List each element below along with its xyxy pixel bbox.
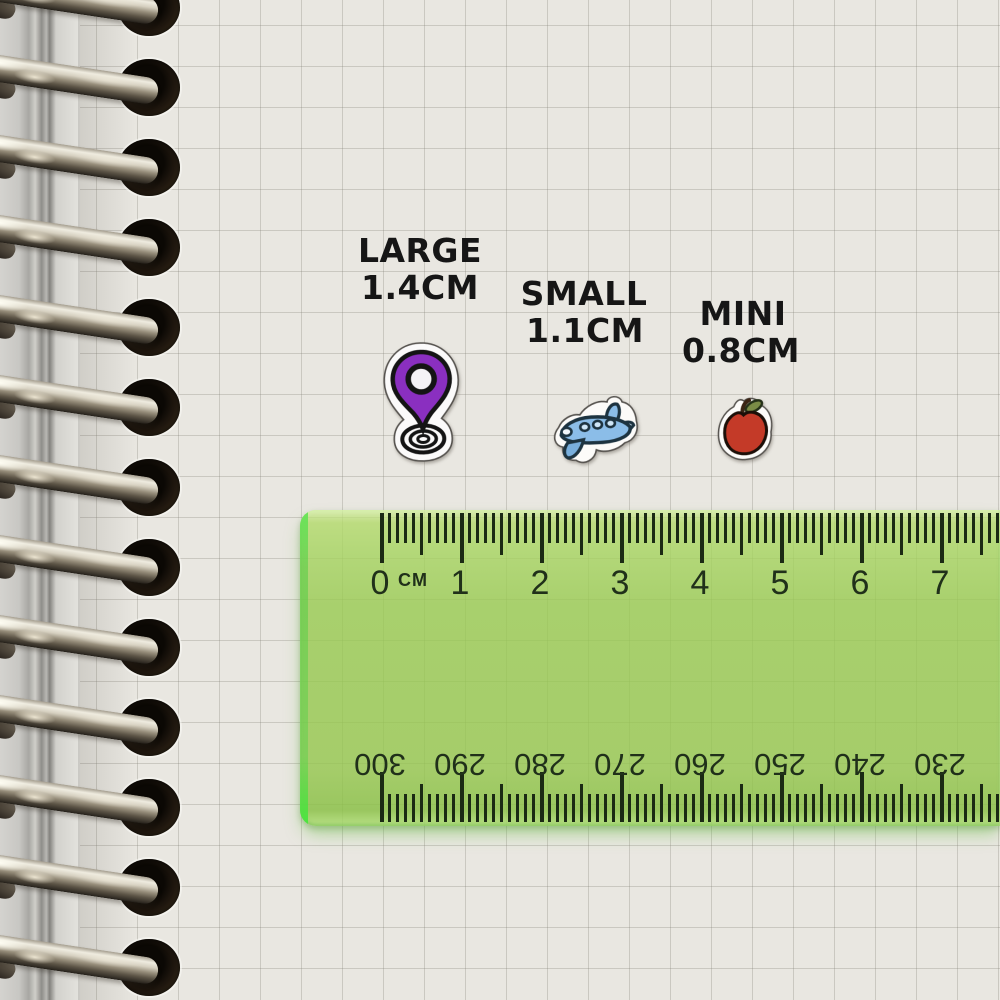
mm-tick	[916, 794, 919, 822]
mm-tick	[692, 794, 695, 822]
ring-wire	[0, 931, 160, 985]
mm-tick	[572, 794, 575, 822]
sticker-airplane	[545, 394, 642, 468]
mm-tick	[444, 794, 447, 822]
mm-tick	[388, 794, 391, 822]
mm-tick	[868, 794, 871, 822]
mm-tick	[684, 794, 687, 822]
mm-number: 270	[594, 746, 646, 782]
mm-tick	[532, 794, 535, 822]
mm-tick	[564, 794, 567, 822]
mm-tick	[740, 784, 743, 822]
ring-wire	[0, 451, 160, 505]
mm-tick	[652, 794, 655, 822]
mm-tick	[508, 794, 511, 822]
mm-tick	[964, 794, 967, 822]
mm-number: 230	[914, 746, 966, 782]
mm-tick	[996, 794, 999, 822]
ring-wire	[0, 371, 160, 425]
mm-tick	[948, 794, 951, 822]
mm-tick	[924, 794, 927, 822]
ring-wire	[0, 611, 160, 665]
mm-tick	[900, 784, 903, 822]
size-label-large: LARGE	[358, 231, 482, 270]
apple-icon	[710, 392, 777, 468]
size-label-small: SMALL	[521, 274, 648, 313]
ring-wire	[0, 851, 160, 905]
size-value-large: 1.4CM	[361, 268, 479, 307]
mm-number: 240	[834, 746, 886, 782]
location-pin-icon	[381, 340, 463, 465]
airplane-icon	[545, 394, 642, 468]
ruler-bottom-scale: 300290280270260250240230	[300, 510, 1000, 826]
mm-tick	[756, 794, 759, 822]
mm-tick	[820, 784, 823, 822]
mm-tick	[596, 794, 599, 822]
mm-tick	[796, 794, 799, 822]
size-label-mini: MINI	[699, 294, 786, 333]
notebook-photo: LARGE 1.4CM SMALL 1.1CM MINI 0.8CM	[0, 0, 1000, 1000]
mm-tick	[812, 794, 815, 822]
ring-wire	[0, 291, 160, 345]
mm-tick	[660, 784, 663, 822]
ring-wire	[0, 211, 160, 265]
mm-number: 250	[754, 746, 806, 782]
mm-tick	[436, 794, 439, 822]
mm-tick	[484, 794, 487, 822]
mm-tick	[892, 794, 895, 822]
mm-tick	[772, 794, 775, 822]
mm-tick	[612, 794, 615, 822]
mm-tick	[420, 784, 423, 822]
ring-wire	[0, 531, 160, 585]
mm-tick	[428, 794, 431, 822]
sticker-apple	[710, 392, 777, 468]
mm-tick	[500, 784, 503, 822]
mm-tick	[844, 794, 847, 822]
mm-tick	[988, 794, 991, 822]
mm-tick	[468, 794, 471, 822]
mm-tick	[604, 794, 607, 822]
mm-number: 290	[434, 746, 486, 782]
mm-number: 280	[514, 746, 566, 782]
mm-tick	[676, 794, 679, 822]
mm-tick	[396, 794, 399, 822]
size-value-mini: 0.8CM	[682, 331, 800, 370]
mm-tick	[628, 794, 631, 822]
mm-tick	[412, 794, 415, 822]
sticker-location-pin	[381, 340, 463, 465]
mm-tick	[884, 794, 887, 822]
mm-tick	[492, 794, 495, 822]
mm-tick	[932, 794, 935, 822]
ring-wire	[0, 131, 160, 185]
mm-tick	[716, 794, 719, 822]
mm-tick	[580, 784, 583, 822]
mm-tick	[876, 794, 879, 822]
size-value-small: 1.1CM	[526, 311, 644, 350]
ring-wire	[0, 51, 160, 105]
mm-tick	[524, 794, 527, 822]
mm-tick	[980, 784, 983, 822]
mm-tick	[956, 794, 959, 822]
mm-tick	[516, 794, 519, 822]
mm-tick	[732, 794, 735, 822]
mm-tick	[404, 794, 407, 822]
mm-tick	[788, 794, 791, 822]
mm-tick	[748, 794, 751, 822]
mm-tick	[852, 794, 855, 822]
mm-tick	[828, 794, 831, 822]
mm-tick	[452, 794, 455, 822]
spiral-ring	[0, 925, 210, 1000]
ruler: CM 01234567 300290280270260250240230	[300, 510, 1000, 826]
mm-tick	[636, 794, 639, 822]
ring-wire	[0, 0, 160, 26]
mm-tick	[764, 794, 767, 822]
mm-tick	[668, 794, 671, 822]
mm-tick	[972, 794, 975, 822]
mm-tick	[556, 794, 559, 822]
mm-tick	[644, 794, 647, 822]
spiral-binding	[0, 0, 210, 1000]
mm-tick	[548, 794, 551, 822]
mm-tick	[908, 794, 911, 822]
ring-wire	[0, 771, 160, 825]
mm-tick	[708, 794, 711, 822]
mm-number: 260	[674, 746, 726, 782]
ring-wire	[0, 691, 160, 745]
mm-tick	[804, 794, 807, 822]
mm-tick	[836, 794, 839, 822]
mm-tick	[724, 794, 727, 822]
mm-number: 300	[354, 746, 406, 782]
mm-tick	[588, 794, 591, 822]
mm-tick	[476, 794, 479, 822]
